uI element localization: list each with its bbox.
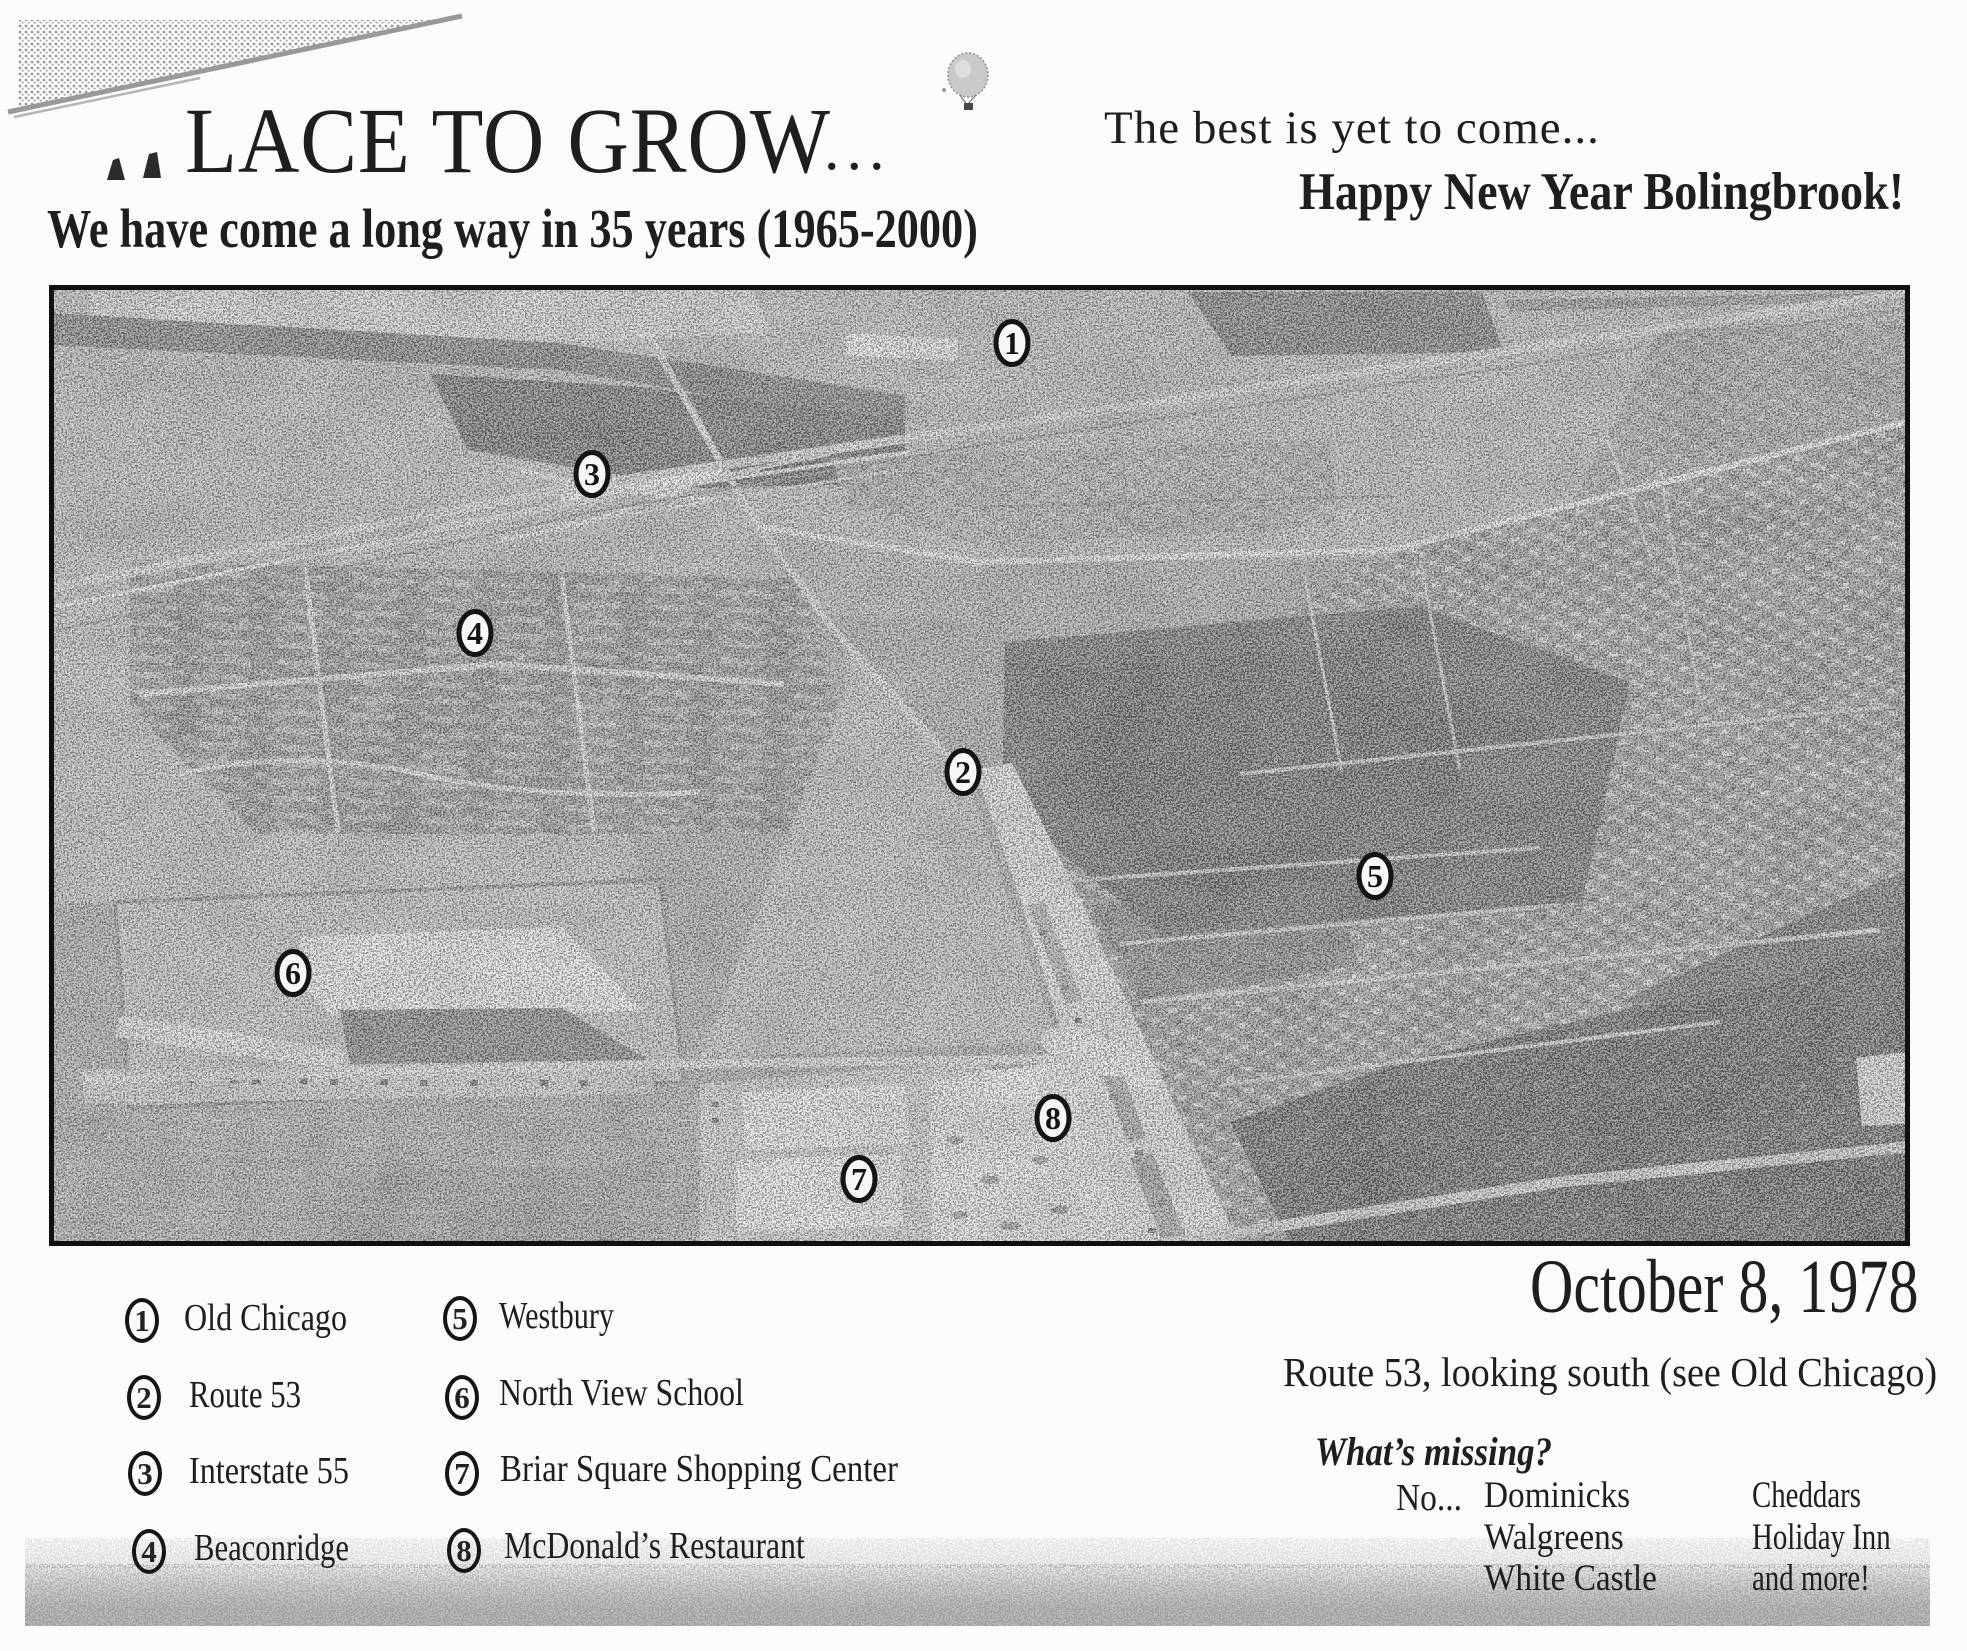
svg-text:2: 2 [955,754,971,790]
svg-text:8: 8 [1045,1100,1061,1136]
svg-text:1: 1 [1004,325,1020,361]
svg-text:7: 7 [851,1161,867,1197]
svg-text:5: 5 [1367,858,1383,894]
svg-text:3: 3 [584,456,600,492]
svg-text:4: 4 [467,615,483,651]
svg-text:6: 6 [285,955,301,991]
